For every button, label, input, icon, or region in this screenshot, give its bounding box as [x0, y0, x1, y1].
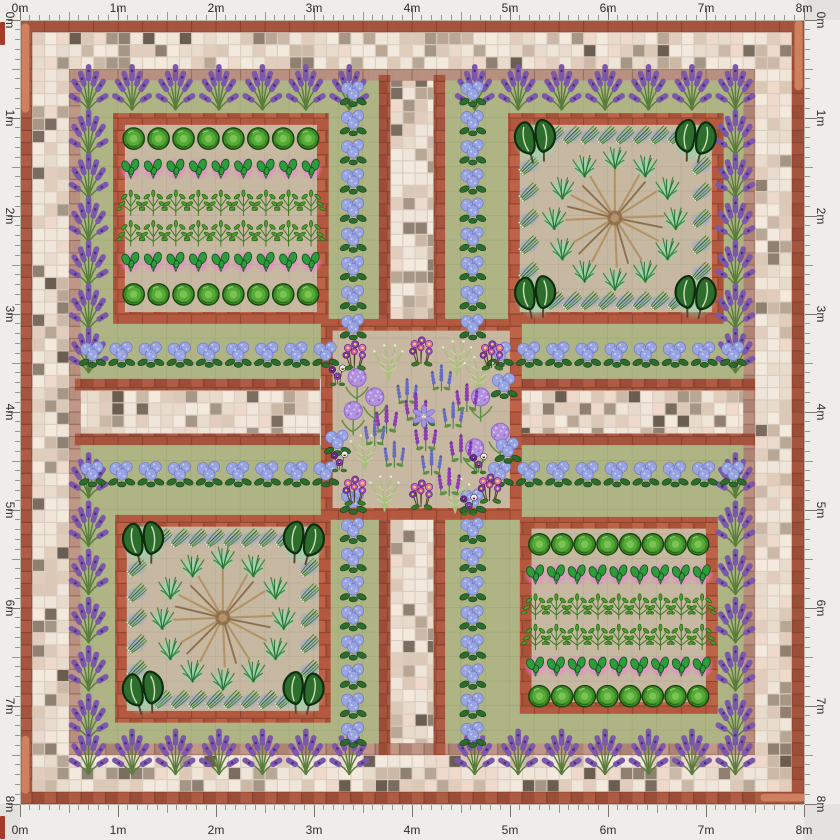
brick-edging-path — [434, 518, 446, 755]
ruler-label-top-8m: 8m — [796, 1, 813, 15]
plant-spinach[interactable] — [164, 250, 187, 273]
ruler-label-left-7m: 7m — [3, 698, 17, 715]
plant-spinach[interactable] — [119, 250, 142, 273]
plant-cabbage[interactable] — [642, 534, 663, 555]
plant-cabbage[interactable] — [574, 686, 595, 707]
plant-primula[interactable] — [478, 474, 501, 504]
plant-cabbage[interactable] — [574, 534, 595, 555]
plant-cabbage[interactable] — [297, 284, 318, 305]
ruler-label-right-3m: 3m — [814, 306, 828, 323]
plant-spinach[interactable] — [607, 563, 630, 586]
plant-spinach[interactable] — [299, 250, 322, 273]
plant-spinach[interactable] — [690, 655, 713, 678]
brick-edging-path — [518, 434, 755, 446]
ruler-label-left-0m: 0m — [3, 12, 17, 29]
plant-spinach[interactable] — [187, 250, 210, 273]
ruler-label-right-7m: 7m — [814, 698, 828, 715]
ruler-label-bottom-7m: 7m — [698, 823, 715, 837]
plant-spinach[interactable] — [232, 157, 255, 180]
plant-spinach[interactable] — [545, 563, 568, 586]
plant-primula[interactable] — [409, 337, 432, 367]
ruler-label-bottom-8m: 8m — [796, 823, 813, 837]
plant-cabbage[interactable] — [688, 534, 709, 555]
plant-cabbage[interactable] — [273, 128, 294, 149]
ruler-label-right-0m: 0m — [814, 12, 828, 29]
ruler-label-right-5m: 5m — [814, 502, 828, 519]
plant-cabbage[interactable] — [148, 128, 169, 149]
plant-spinach[interactable] — [565, 655, 588, 678]
ruler-label-bottom-6m: 6m — [600, 823, 617, 837]
ruler-label-bottom-5m: 5m — [502, 823, 519, 837]
plant-spinach[interactable] — [690, 563, 713, 586]
plant-spinach[interactable] — [254, 157, 277, 180]
ruler-label-top-5m: 5m — [502, 1, 519, 15]
plant-cabbage[interactable] — [273, 284, 294, 305]
plant-spinach[interactable] — [232, 250, 255, 273]
plant-spinach[interactable] — [670, 655, 693, 678]
plant-spinach[interactable] — [545, 655, 568, 678]
plant-spinach[interactable] — [628, 655, 651, 678]
plant-spinach[interactable] — [164, 157, 187, 180]
brick-edging-path — [379, 518, 391, 755]
plant-spinach[interactable] — [649, 655, 672, 678]
plant-cabbage[interactable] — [529, 534, 550, 555]
plant-spinach[interactable] — [524, 655, 547, 678]
plant-spinach[interactable] — [586, 655, 609, 678]
brick-edging-path — [379, 75, 391, 320]
edging-right-top[interactable] — [794, 20, 803, 91]
plant-spinach[interactable] — [524, 563, 547, 586]
brick-edging-path — [75, 434, 320, 446]
ruler-label-right-8m: 8m — [814, 796, 828, 813]
plant-cabbage[interactable] — [529, 686, 550, 707]
plant-primula[interactable] — [343, 341, 366, 371]
plant-spinach[interactable] — [209, 157, 232, 180]
plant-cabbage[interactable] — [123, 284, 144, 305]
garden-canvas[interactable] — [20, 20, 804, 804]
plant-cabbage[interactable] — [597, 686, 618, 707]
ruler-label-bottom-1m: 1m — [110, 823, 127, 837]
ruler-label-bottom-0m: 0m — [12, 823, 29, 837]
plant-spinach[interactable] — [628, 563, 651, 586]
plant-cabbage[interactable] — [173, 284, 194, 305]
plant-spinach[interactable] — [142, 157, 165, 180]
plant-spinach[interactable] — [119, 157, 142, 180]
plant-spinach[interactable] — [565, 563, 588, 586]
ruler-label-bottom-4m: 4m — [404, 823, 421, 837]
brick-edging-ring — [20, 32, 32, 792]
plant-spinach[interactable] — [277, 157, 300, 180]
brick-edging-path — [434, 75, 446, 320]
plant-cabbage[interactable] — [223, 128, 244, 149]
plant-spinach[interactable] — [299, 157, 322, 180]
plant-cabbage[interactable] — [297, 128, 318, 149]
ruler-label-left-5m: 5m — [3, 502, 17, 519]
plant-cabbage[interactable] — [665, 686, 686, 707]
plant-spinach[interactable] — [277, 250, 300, 273]
ruler-label-top-2m: 2m — [208, 1, 225, 15]
brick-edging-path — [75, 379, 320, 391]
plant-spinach[interactable] — [187, 157, 210, 180]
plant-primula[interactable] — [343, 476, 366, 506]
ruler-label-right-2m: 2m — [814, 208, 828, 225]
edging-left-bottom[interactable] — [21, 735, 30, 794]
plant-cabbage[interactable] — [148, 284, 169, 305]
ruler-label-left-6m: 6m — [3, 600, 17, 617]
brick-edging-ring — [20, 792, 804, 804]
plant-cabbage[interactable] — [597, 534, 618, 555]
ruler-bottom: 0m1m2m3m4m5m6m7m8m — [20, 804, 804, 840]
plant-cabbage[interactable] — [551, 686, 572, 707]
ruler-label-right-1m: 1m — [814, 110, 828, 127]
plant-cabbage[interactable] — [619, 534, 640, 555]
ruler-label-top-4m: 4m — [404, 1, 421, 15]
edging-bottom-right[interactable] — [760, 793, 804, 802]
plant-spinach[interactable] — [142, 250, 165, 273]
plant-spinach[interactable] — [670, 563, 693, 586]
ruler-label-bottom-3m: 3m — [306, 823, 323, 837]
brick-edging-ring — [792, 32, 804, 792]
plant-spinach[interactable] — [209, 250, 232, 273]
plant-cabbage[interactable] — [173, 128, 194, 149]
plant-cabbage[interactable] — [551, 534, 572, 555]
edging-left-top[interactable] — [21, 23, 30, 113]
plant-spinach[interactable] — [586, 563, 609, 586]
ruler-label-right-6m: 6m — [814, 600, 828, 617]
ruler-label-right-4m: 4m — [814, 404, 828, 421]
ruler-label-top-3m: 3m — [306, 1, 323, 15]
ruler-top: 0m1m2m3m4m5m6m7m8m — [20, 0, 804, 21]
plant-cabbage[interactable] — [248, 128, 269, 149]
ruler-right: 0m1m2m3m4m5m6m7m8m — [804, 20, 840, 804]
brick-edging-ring — [20, 20, 804, 32]
ruler-label-left-3m: 3m — [3, 306, 17, 323]
garden-planner-app: 0m1m2m3m4m5m6m7m8m 0m1m2m3m4m5m6m7m8m 0m… — [0, 0, 840, 840]
ruler-left: 0m1m2m3m4m5m6m7m8m — [0, 20, 21, 804]
plant-spinach[interactable] — [607, 655, 630, 678]
plant-cabbage[interactable] — [198, 284, 219, 305]
ruler-label-top-6m: 6m — [600, 1, 617, 15]
ruler-marker-top-left — [0, 22, 5, 45]
plant-cabbage[interactable] — [665, 534, 686, 555]
plant-cabbage[interactable] — [248, 284, 269, 305]
ruler-label-left-1m: 1m — [3, 110, 17, 127]
plant-primula[interactable] — [409, 480, 432, 510]
plant-primula[interactable] — [480, 341, 503, 371]
plant-cabbage[interactable] — [619, 686, 640, 707]
ruler-label-bottom-2m: 2m — [208, 823, 225, 837]
plant-spinach[interactable] — [254, 250, 277, 273]
plant-cabbage[interactable] — [642, 686, 663, 707]
bed-top-left[interactable] — [113, 113, 329, 324]
plant-spinach[interactable] — [649, 563, 672, 586]
ruler-label-top-7m: 7m — [698, 1, 715, 15]
plant-cabbage[interactable] — [123, 128, 144, 149]
ruler-label-top-1m: 1m — [110, 1, 127, 15]
ruler-marker-bottom-left — [0, 816, 5, 839]
brick-edging-path — [518, 379, 755, 391]
ruler-label-left-2m: 2m — [3, 208, 17, 225]
plant-cabbage[interactable] — [223, 284, 244, 305]
ruler-label-left-8m: 8m — [3, 796, 17, 813]
plant-cabbage[interactable] — [688, 686, 709, 707]
ruler-label-left-4m: 4m — [3, 404, 17, 421]
plant-cabbage[interactable] — [198, 128, 219, 149]
